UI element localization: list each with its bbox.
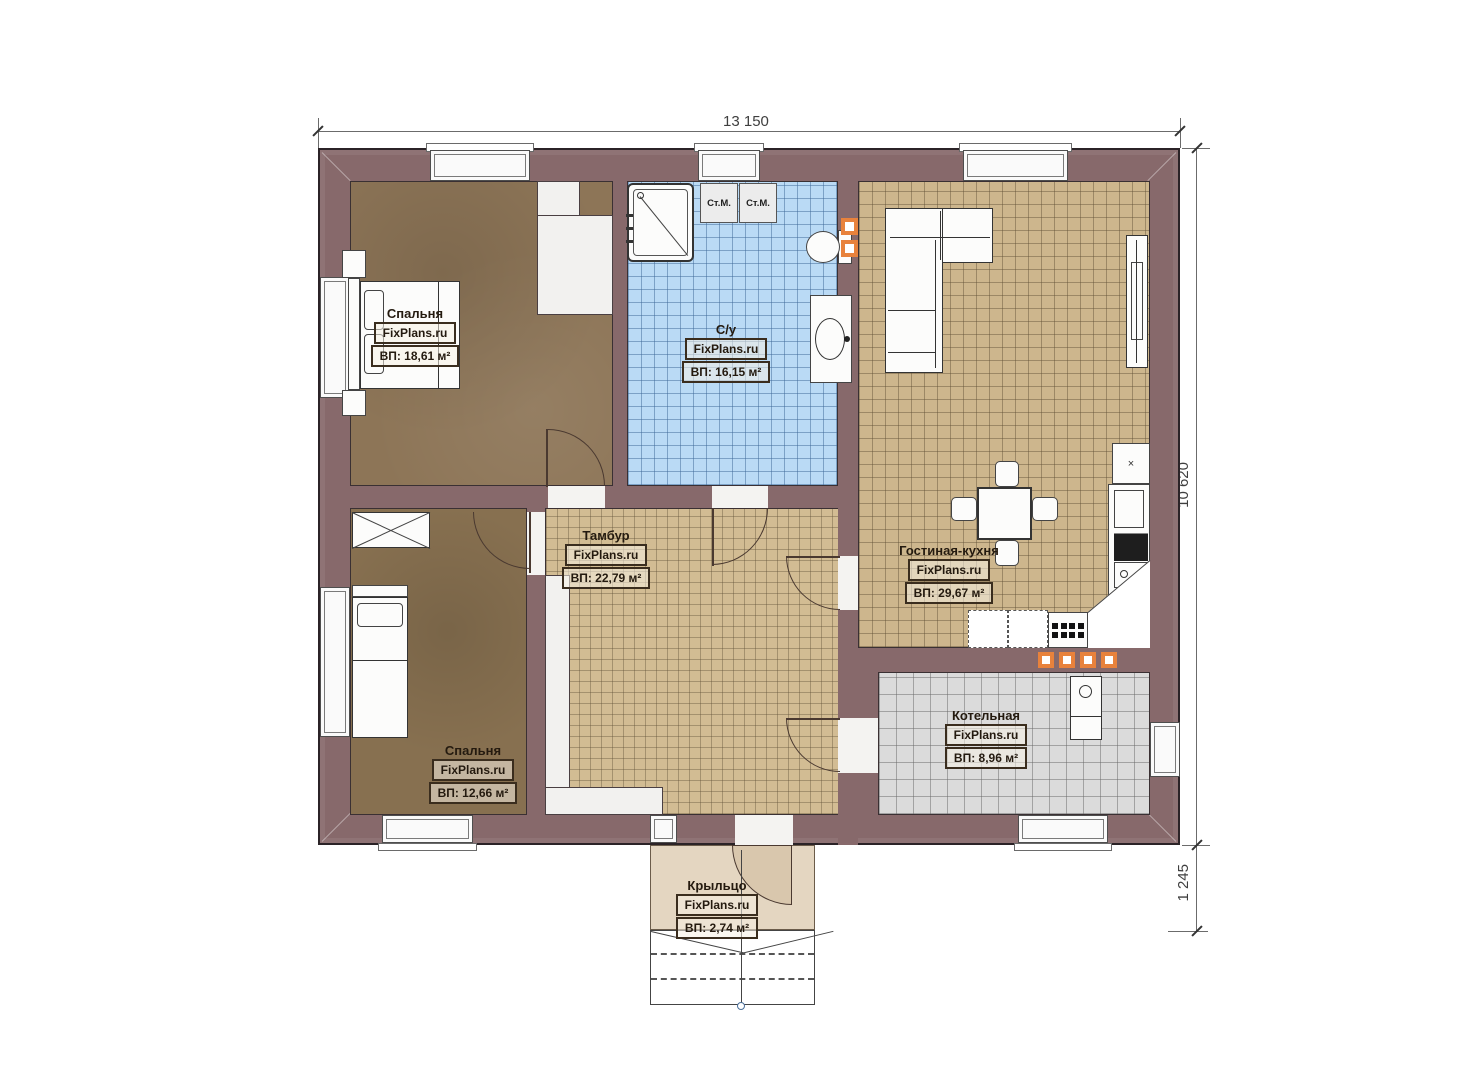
nightstand-icon xyxy=(342,250,366,278)
room-label-hall: Тамбур FixPlans.ru ВП: 22,79 м² xyxy=(550,528,662,589)
toilet-icon xyxy=(806,231,840,263)
door-gap-living xyxy=(838,556,858,610)
window-bedroom1-top xyxy=(430,150,530,181)
window-bedroom2-bottom xyxy=(382,815,473,843)
area-tag: ВП: 22,79 м² xyxy=(562,567,651,589)
fridge-mark: × xyxy=(1128,458,1134,470)
floor-plan-canvas: 13 150 10 620 1 245 xyxy=(0,0,1473,1080)
room-label-living-kitchen: Гостиная-кухня FixPlans.ru ВП: 29,67 м² xyxy=(888,543,1010,604)
bedroom1-niche xyxy=(537,181,580,216)
brand-tag: FixPlans.ru xyxy=(374,322,457,344)
dimension-extension xyxy=(1168,931,1208,932)
window-sill xyxy=(378,843,477,851)
area-tag: ВП: 2,74 м² xyxy=(676,917,758,939)
washing-machine-label: Ст.М. xyxy=(707,198,731,209)
dimension-extension xyxy=(318,118,319,148)
window-bedroom1-left xyxy=(320,277,350,398)
washing-machine-icon: Ст.М. xyxy=(739,183,777,223)
sofa-cushion-line xyxy=(940,211,941,260)
step-edge xyxy=(651,953,814,955)
kitchen-sink-icon xyxy=(1114,490,1144,528)
room-title: Спальня xyxy=(445,743,501,758)
room-title: С/у xyxy=(716,322,736,337)
sink-faucet-icon xyxy=(844,336,850,342)
area-tag: ВП: 8,96 м² xyxy=(945,747,1027,769)
hall-closet xyxy=(545,575,570,789)
pillow-icon xyxy=(357,603,403,627)
door-gap-entrance xyxy=(735,815,793,845)
window-boiler-right xyxy=(1150,722,1180,777)
chair-icon xyxy=(995,461,1019,487)
brand-tag: FixPlans.ru xyxy=(565,544,648,566)
shower-tick xyxy=(626,240,633,243)
hob-burners xyxy=(1069,623,1084,638)
window-hall-bottom xyxy=(650,815,677,843)
bedroom1-niche xyxy=(537,215,613,315)
room-label-bedroom1: Спальня FixPlans.ru ВП: 18,61 м² xyxy=(352,306,478,367)
shower-tick xyxy=(626,214,633,217)
hob-burners xyxy=(1052,623,1067,638)
tv-line xyxy=(1136,240,1137,363)
brand-tag: FixPlans.ru xyxy=(685,338,768,360)
sofa-cushion-line xyxy=(888,352,936,353)
dimension-line-right xyxy=(1196,148,1197,931)
kitchen-cabinet-icon xyxy=(968,610,1008,648)
dimension-line-top xyxy=(318,131,1180,132)
room-title: Крыльцо xyxy=(687,878,746,893)
room-label-bathroom: С/у FixPlans.ru ВП: 16,15 м² xyxy=(668,322,784,383)
door-gap-boiler xyxy=(838,718,878,773)
boiler-dial-icon xyxy=(1079,685,1092,698)
area-tag: ВП: 18,61 м² xyxy=(371,345,460,367)
radiator-icon xyxy=(1080,652,1096,668)
boiler-divider xyxy=(1071,716,1101,717)
shower-head-icon xyxy=(637,192,644,199)
hall-closet xyxy=(545,787,663,815)
stairs-axis-node xyxy=(737,1002,745,1010)
stove-icon xyxy=(1114,533,1148,561)
kitchen-cabinet-icon xyxy=(1008,610,1048,648)
radiator-icon xyxy=(1038,652,1054,668)
radiator-icon xyxy=(841,240,858,257)
radiator-icon xyxy=(1059,652,1075,668)
sofa-cushion-line xyxy=(935,240,936,368)
chair-icon xyxy=(951,497,977,521)
brand-tag: FixPlans.ru xyxy=(908,559,991,581)
fridge-icon: × xyxy=(1112,443,1150,484)
sofa-cushion-line xyxy=(888,310,936,311)
shower-tick xyxy=(626,227,633,230)
dimension-top-value: 13 150 xyxy=(723,113,769,130)
step-edge xyxy=(651,978,814,980)
door-gap-bathroom xyxy=(712,486,768,508)
room-title: Тамбур xyxy=(582,528,629,543)
window-bedroom2-left xyxy=(320,587,350,737)
tv-icon xyxy=(1131,262,1143,340)
room-title: Гостиная-кухня xyxy=(899,543,999,558)
radiator-icon xyxy=(841,218,858,235)
area-tag: ВП: 29,67 м² xyxy=(905,582,994,604)
room-label-boiler: Котельная FixPlans.ru ВП: 8,96 м² xyxy=(932,708,1040,769)
window-living-top xyxy=(963,150,1068,181)
area-tag: ВП: 16,15 м² xyxy=(682,361,771,383)
room-title: Спальня xyxy=(387,306,443,321)
sink-basin-icon xyxy=(815,318,845,360)
wall-bedroom1-bathroom xyxy=(613,181,627,486)
dimension-extension xyxy=(1180,118,1181,148)
washing-machine-icon: Ст.М. xyxy=(700,183,738,223)
room-label-bedroom2: Спальня FixPlans.ru ВП: 12,66 м² xyxy=(418,743,528,804)
nightstand-icon xyxy=(342,390,366,416)
hob-icon xyxy=(1048,612,1088,648)
washing-machine-label: Ст.М. xyxy=(746,198,770,209)
radiator-icon xyxy=(1101,652,1117,668)
area-tag: ВП: 12,66 м² xyxy=(429,782,518,804)
window-sill xyxy=(1014,843,1112,851)
window-boiler-bottom xyxy=(1018,815,1108,843)
room-title: Котельная xyxy=(952,708,1020,723)
door-gap-bedroom1 xyxy=(548,486,605,508)
bed-headboard xyxy=(352,585,408,597)
brand-tag: FixPlans.ru xyxy=(432,759,515,781)
brand-tag: FixPlans.ru xyxy=(676,894,759,916)
dimension-porch-value: 1 245 xyxy=(1175,864,1192,902)
blanket-line xyxy=(353,660,407,661)
brand-tag: FixPlans.ru xyxy=(945,724,1028,746)
kitchen-unit-knob xyxy=(1120,570,1128,578)
window-bathroom-top xyxy=(698,150,760,181)
dining-table-icon xyxy=(977,487,1032,540)
room-label-porch: Крыльцо FixPlans.ru ВП: 2,74 м² xyxy=(666,878,768,939)
chair-icon xyxy=(1032,497,1058,521)
